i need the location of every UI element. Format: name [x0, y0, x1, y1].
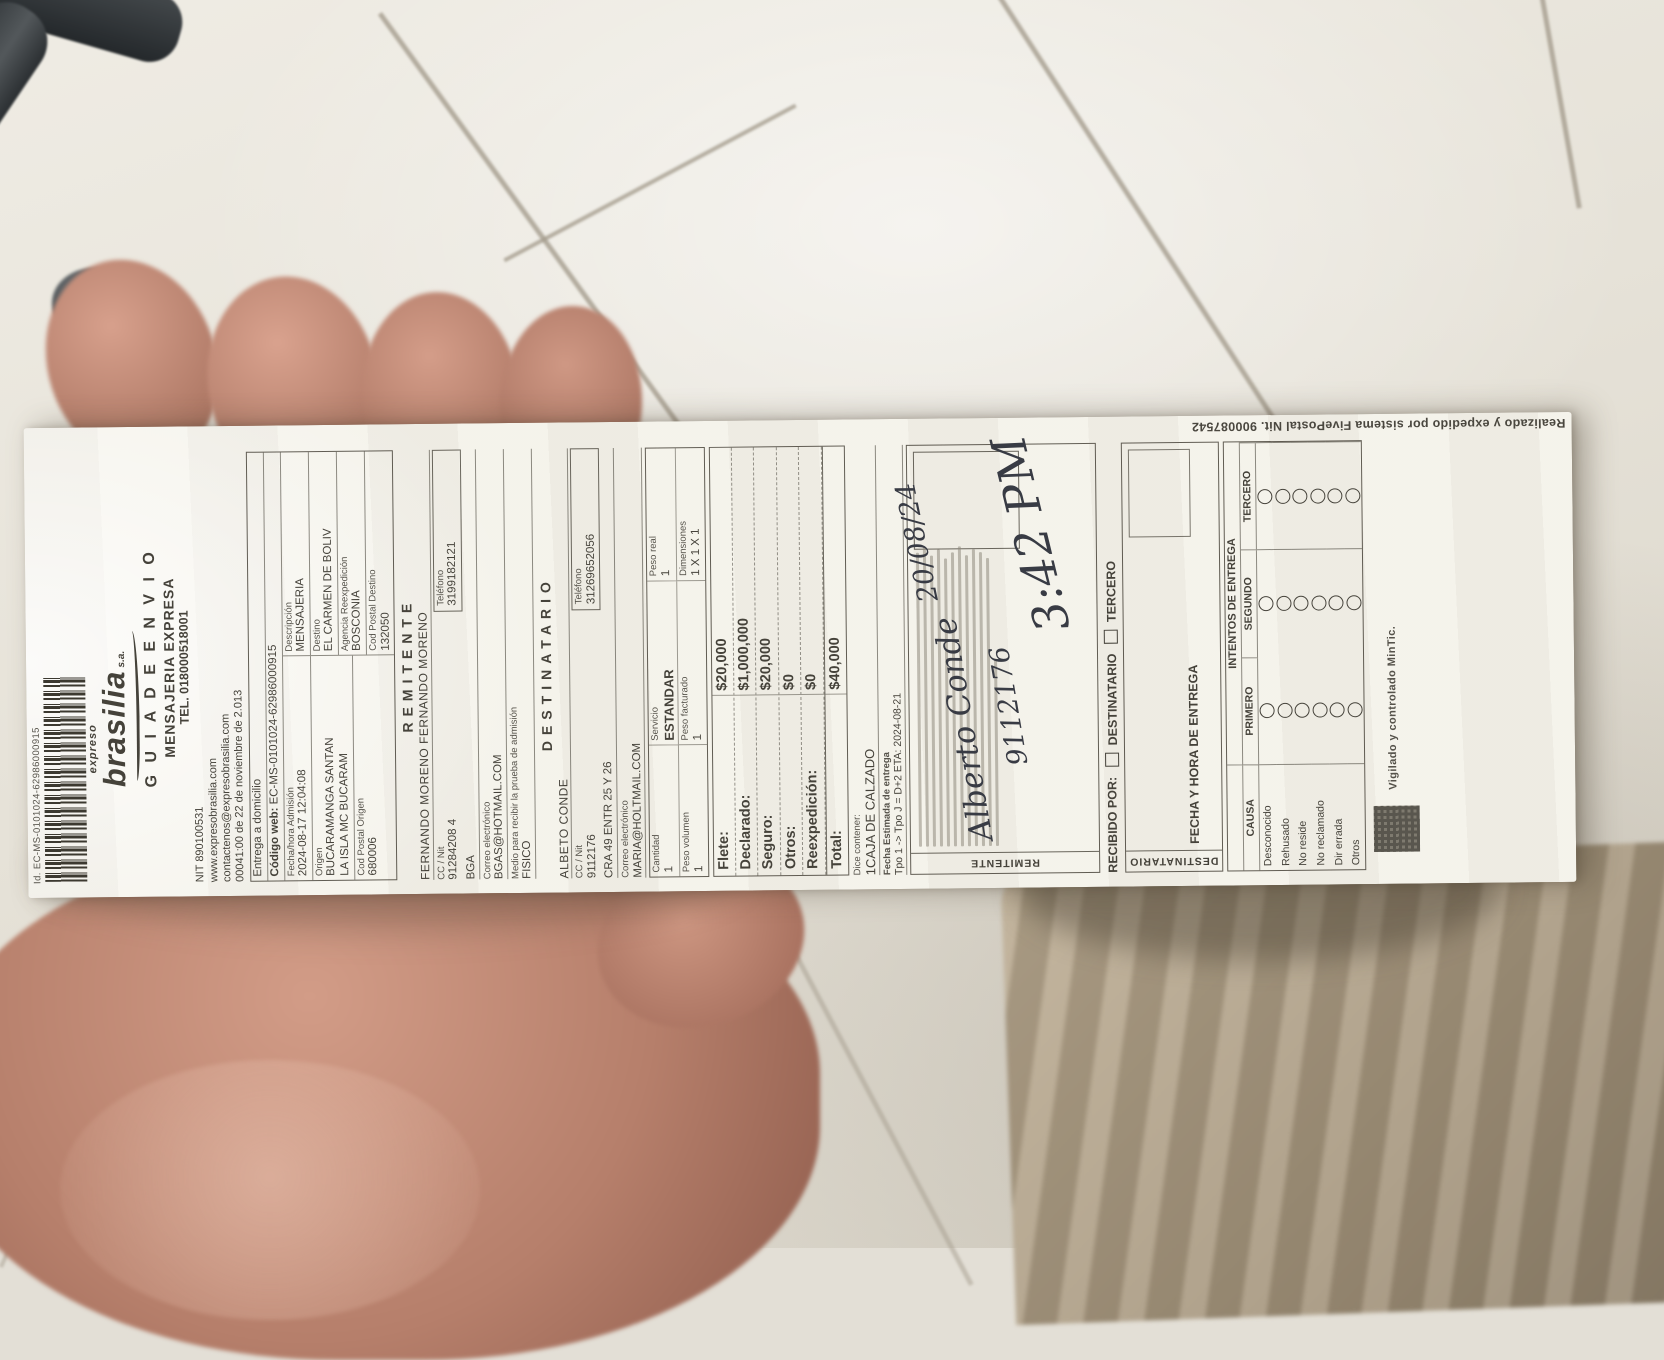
- cause-label: Otros: [1347, 763, 1366, 869]
- bubble: [1275, 489, 1290, 504]
- dimensions-cell: Dimensiones 1 X 1 X 1: [676, 448, 705, 580]
- checkbox-tercero: [1104, 629, 1118, 643]
- barcode: [44, 676, 88, 881]
- contents-row: Dice contener: 1CAJA DE CALZADO: [848, 445, 880, 875]
- guide-id-text: Id. EC-MS-0101024-62986000915: [28, 454, 44, 884]
- origin-cell: Origen BUCARAMANGA SANTAN LA ISLA MC BUC…: [311, 656, 355, 880]
- brand-suffix: s.a.: [116, 651, 127, 668]
- sender-signature-label-text: REMITENTE: [970, 856, 1040, 869]
- system-edge-line: Realizado y expedido por sistema FivePos…: [1192, 415, 1566, 434]
- contents-value: 1CAJA DE CALZADO: [859, 445, 879, 875]
- package-table: Cantidad 1 Servicio ESTANDAR Peso real 1…: [645, 447, 709, 878]
- description-value: MENSAJERIA: [293, 456, 309, 651]
- charge-value: $20,000: [756, 634, 778, 696]
- dimensions-value: 1 X 1 X 1: [689, 452, 704, 576]
- sender-signature-side-label: REMITENTE: [911, 851, 1099, 874]
- attempts-corner-cell: [1227, 764, 1244, 870]
- recipient-address: CRA 49 ENTR 25 Y 26: [599, 448, 618, 878]
- charge-value: $0: [801, 670, 823, 695]
- destination-cell: Destino EL CARMEN DE BOLIV: [309, 452, 339, 656]
- attempt-bubble-cell: [1309, 549, 1328, 657]
- qty-value: 1: [662, 750, 677, 873]
- charge-value: $0: [779, 670, 801, 695]
- charge-label: Seguro:: [757, 695, 780, 875]
- attempt-col-primero: PRIMERO: [1242, 657, 1259, 764]
- cause-label: No reclamado: [1312, 763, 1331, 869]
- service-cell: Servicio ESTANDAR: [648, 580, 680, 745]
- bubble: [1295, 703, 1310, 718]
- qty-cell: Cantidad 1: [649, 745, 680, 877]
- regulator-line: Vigilado y controlado MinTic.: [1386, 626, 1401, 790]
- bubble: [1259, 703, 1274, 718]
- attempt-bubble-cell: [1326, 441, 1345, 549]
- charges-table: Flete: $20,000 Declarado: $1,000,000 Seg…: [708, 446, 849, 877]
- charge-total-row: Total: $40,000: [821, 447, 848, 875]
- sender-signature-row: REMITENTE Alberto Conde 9112176 20/08/24…: [906, 443, 1100, 875]
- cause-label: Desconocido: [1259, 764, 1278, 870]
- charge-value: $20,000: [711, 634, 733, 696]
- received-by-destinatario-text: DESTINATARIO: [1105, 653, 1120, 745]
- received-by-tercero-text: TERCERO: [1104, 561, 1119, 622]
- bubble: [1276, 596, 1291, 611]
- cause-label: No reside: [1294, 764, 1313, 870]
- attempt-bubble-cell: [1257, 549, 1276, 657]
- charge-label: Otros:: [779, 695, 802, 875]
- delivery-datetime-area: FECHA Y HORA DE ENTREGA: [1122, 443, 1222, 851]
- charge-label: Reexpedición:: [802, 695, 825, 875]
- attempt-bubble-cell: [1345, 548, 1364, 656]
- vol-weight-cell: Peso volumen 1: [679, 744, 708, 876]
- sender-phone-cell: Teléfono 3199182121: [431, 450, 462, 612]
- cause-label: Dir errada: [1329, 763, 1348, 869]
- recipient-id-value: 9112176: [583, 610, 600, 878]
- received-by-label: RECIBIDO POR:: [1106, 777, 1122, 873]
- recipient-signature-label-text: DESTINATARIO: [1129, 854, 1218, 868]
- shipping-receipt: Id. EC-MS-0101024-62986000915 expreso br…: [24, 412, 1577, 898]
- sender-signature-area: Alberto Conde 9112176 20/08/24 3:42 PM: [907, 444, 1099, 853]
- agency-value: BOSCONIA: [349, 456, 365, 651]
- admission-date-cell: Fecha/hora Admisión 2024-08-17 12:04:08: [283, 656, 314, 880]
- attempt-bubble-cell: [1258, 657, 1277, 765]
- bubble: [1329, 595, 1344, 610]
- bubble: [1292, 488, 1307, 503]
- received-by-row: RECIBIDO POR: DESTINATARIO TERCERO: [1102, 443, 1123, 873]
- attempt-col-tercero: TERCERO: [1240, 442, 1257, 550]
- attempt-bubble-cell: [1275, 657, 1294, 765]
- bubble: [1294, 596, 1309, 611]
- qr-code: [1374, 806, 1420, 852]
- cause-label: Rehusado: [1276, 764, 1295, 870]
- bubble: [1257, 489, 1272, 504]
- admission-box: Entrega a domicilio Código web: EC-MS-01…: [246, 450, 398, 882]
- attempt-col-segundo: SEGUNDO: [1241, 550, 1258, 657]
- attempt-bubble-cell: [1328, 656, 1347, 764]
- recipient-phone-cell: Teléfono 31269652056: [570, 448, 601, 610]
- causa-header: CAUSA: [1243, 764, 1260, 870]
- bubble: [1258, 596, 1273, 611]
- attempt-bubble-cell: [1293, 656, 1312, 764]
- agency-cell: Agencia Reexpedición BOSCONIA: [337, 452, 367, 656]
- sender-id-value: 91284208 4: [445, 612, 462, 880]
- recipient-phone-value: 31269652056: [583, 454, 598, 604]
- attempt-bubble-cell: [1274, 549, 1293, 657]
- bubble: [1347, 702, 1362, 717]
- brand-logo: expreso brasilia s.a.: [85, 453, 140, 788]
- sender-id-cell: CC / Nit 91284208 4: [433, 612, 465, 880]
- origin-postal-value: 680006: [365, 660, 381, 876]
- real-weight-value: 1: [659, 452, 674, 576]
- dest-postal-value: 132050: [378, 455, 394, 650]
- sender-name: FERNANDO MORENO FERNANDO MORENO: [414, 450, 434, 880]
- charge-value: $1,000,000: [734, 614, 756, 696]
- brand-name: brasilia: [97, 670, 133, 787]
- attempt-bubble-cell: [1343, 441, 1362, 549]
- admission-date-value: 2024-08-17 12:04:08: [295, 660, 311, 876]
- vol-weight-value: 1: [692, 749, 707, 872]
- seal-box-small: [1128, 449, 1191, 538]
- total-label: Total:: [825, 695, 848, 875]
- origin-agency: LA ISLA MC BUCARAM: [337, 660, 353, 876]
- receipt-footer: Vigilado y controlado MinTic.: [1370, 440, 1421, 870]
- recipient-id-cell: CC / Nit 9112176: [572, 610, 604, 878]
- bubble: [1346, 595, 1361, 610]
- recipient-signature-row: DESTINATARIO FECHA Y HORA DE ENTREGA: [1121, 442, 1223, 873]
- bubble: [1311, 596, 1326, 611]
- checkbox-destinatario: [1105, 753, 1119, 767]
- destination-value: EL CARMEN DE BOLIV: [321, 456, 337, 651]
- sender-phone-value: 3199182121: [445, 456, 460, 606]
- charge-label: Flete:: [712, 696, 735, 876]
- service-value: ESTANDAR: [660, 585, 677, 741]
- bubble: [1330, 702, 1345, 717]
- received-by-destinatario-option: DESTINATARIO: [1104, 653, 1121, 767]
- bubble: [1345, 488, 1360, 503]
- real-weight-cell: Peso real 1: [646, 448, 677, 580]
- bubble: [1312, 702, 1327, 717]
- attempt-bubble-cell: [1273, 442, 1292, 550]
- origin-postal-cell: Cod Postal Origen 680006: [353, 656, 383, 880]
- codigo-web-value: EC-MS-0101024-62986000915: [267, 645, 281, 805]
- attempt-bubble-cell: [1292, 549, 1311, 657]
- attempt-bubble-cell: [1291, 442, 1310, 550]
- recipient-signature-side-label: DESTINATARIO: [1126, 850, 1222, 872]
- recipient-name: ALBETO CONDE: [553, 448, 573, 878]
- total-value: $40,000: [824, 633, 846, 695]
- receipt-content: Id. EC-MS-0101024-62986000915 expreso br…: [24, 412, 1577, 898]
- attempt-bubble-cell: [1255, 442, 1274, 550]
- billed-weight-cell: Peso facturado 1: [678, 580, 707, 745]
- palm-highlight: [60, 1060, 480, 1320]
- delivery-attempts-table: INTENTOS DE ENTREGA CAUSA PRIMERO SEGUND…: [1223, 440, 1367, 871]
- received-by-tercero-option: TERCERO: [1103, 561, 1120, 644]
- bubble: [1328, 488, 1343, 503]
- attempt-bubble-cell: [1310, 656, 1329, 764]
- codigo-web-label: Código web:: [268, 807, 281, 876]
- attempt-bubble-cell: [1308, 441, 1327, 549]
- description-cell: Descripción MENSAJERIA: [281, 452, 311, 656]
- billed-weight-value: 1: [690, 585, 705, 741]
- sender-email-value: BGAS@HOTMAIL.COM: [489, 449, 508, 879]
- bubble: [1277, 703, 1292, 718]
- attempt-bubble-cell: [1346, 656, 1365, 764]
- bubble: [1310, 488, 1325, 503]
- attempt-bubble-cell: [1327, 549, 1346, 657]
- dest-postal-cell: Cod Postal Destino 132050: [365, 451, 394, 655]
- charge-label: Declarado:: [734, 695, 757, 875]
